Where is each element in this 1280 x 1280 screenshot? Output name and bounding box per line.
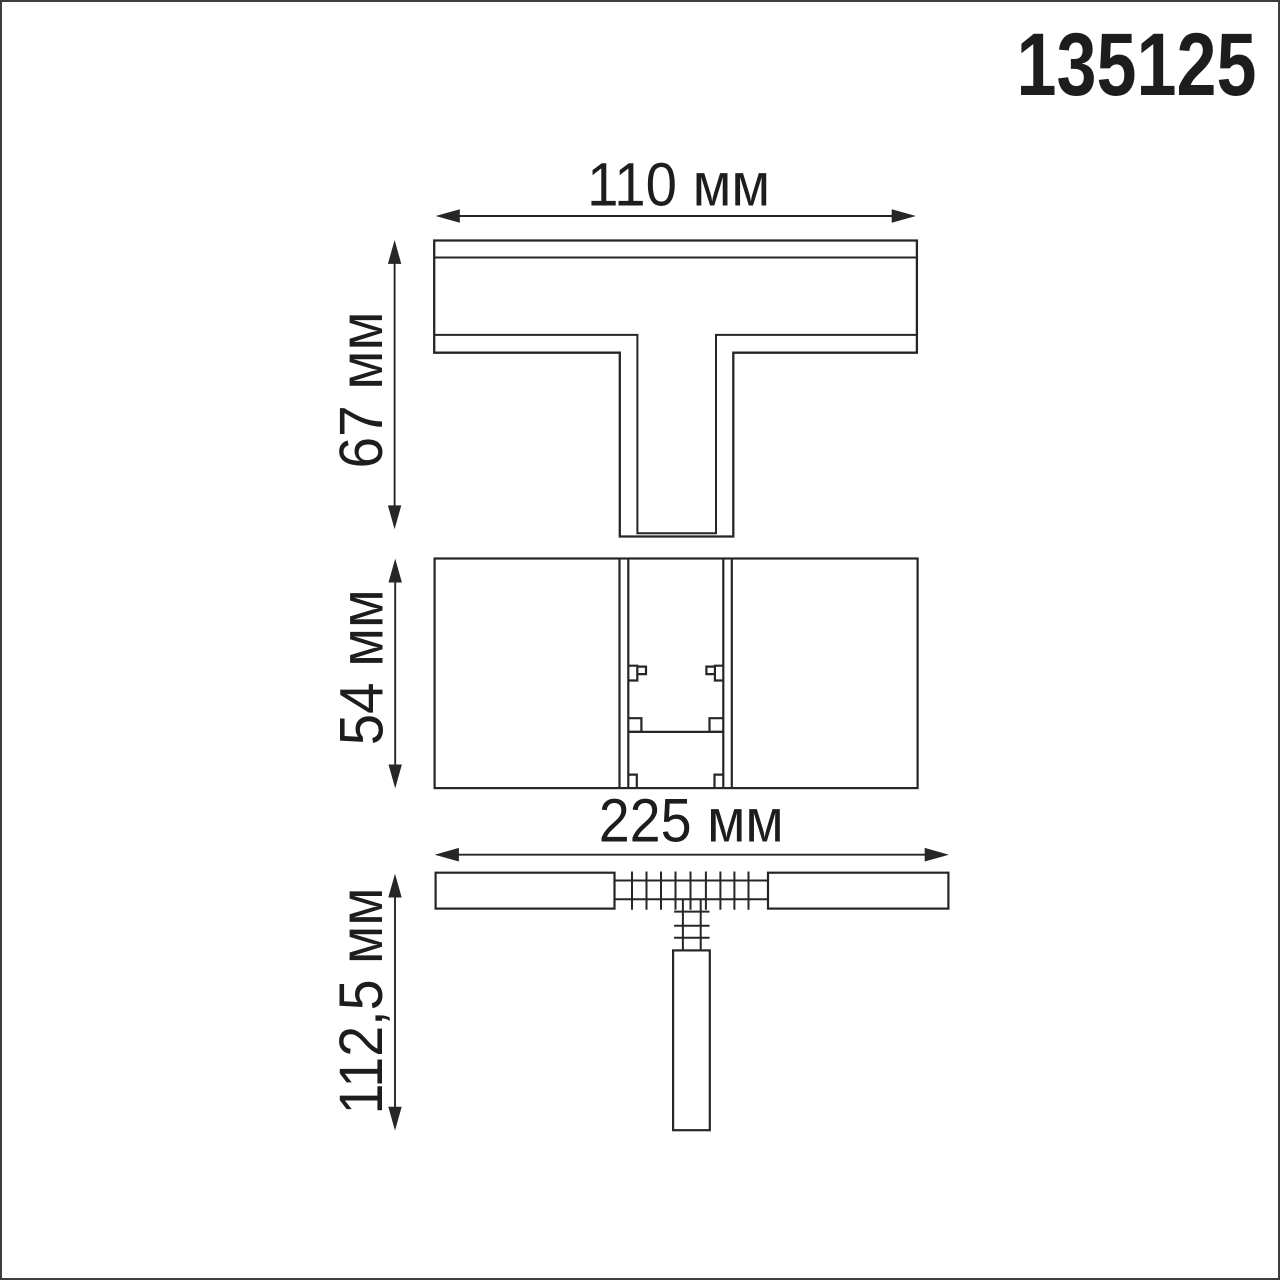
svg-text:110 мм: 110 мм	[587, 151, 770, 219]
svg-text:67 мм: 67 мм	[327, 312, 395, 469]
svg-text:135125: 135125	[1017, 14, 1257, 114]
svg-text:112,5 мм: 112,5 мм	[327, 888, 395, 1115]
svg-text:54 мм: 54 мм	[328, 589, 396, 745]
svg-text:225 мм: 225 мм	[599, 786, 784, 854]
